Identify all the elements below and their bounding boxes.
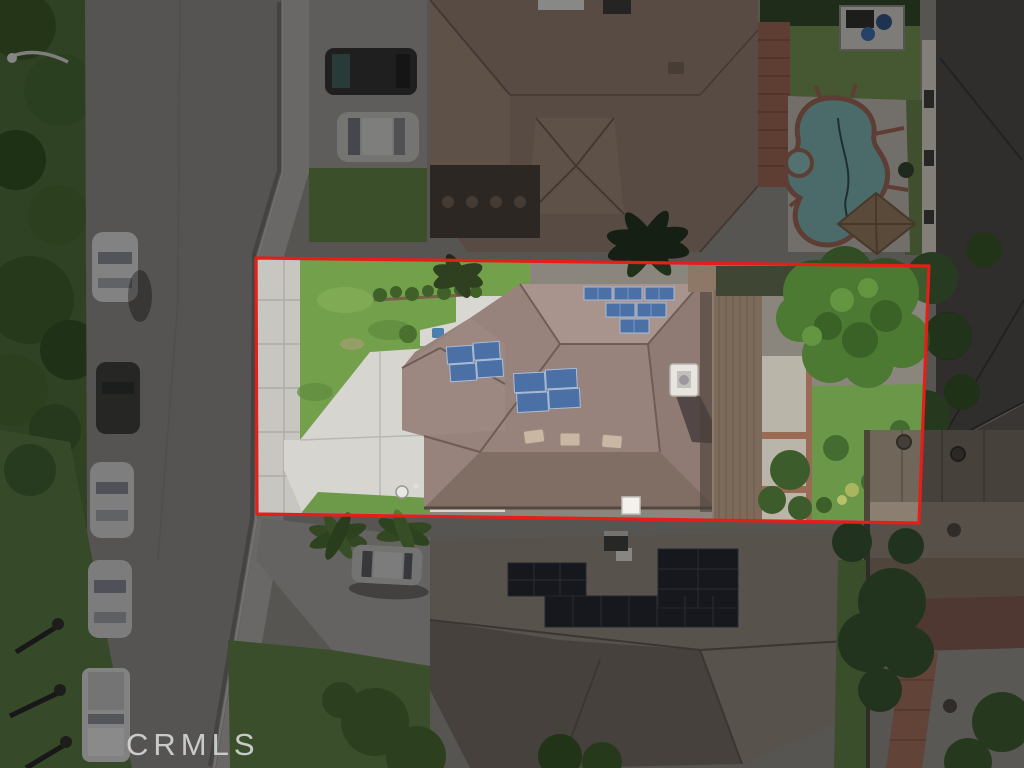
roof-vent-round bbox=[897, 435, 911, 449]
patio-gap-shadow bbox=[700, 292, 712, 512]
satellite-dish-small bbox=[413, 483, 419, 489]
patio-cover bbox=[712, 290, 762, 520]
aerial-scene bbox=[0, 0, 1024, 768]
crmls-watermark: CRMLS bbox=[126, 727, 260, 763]
chimney-cap bbox=[622, 497, 640, 514]
satellite-dish bbox=[396, 486, 408, 498]
aerial-photo-stage: CRMLS bbox=[0, 0, 1024, 768]
front-bush bbox=[399, 325, 417, 343]
